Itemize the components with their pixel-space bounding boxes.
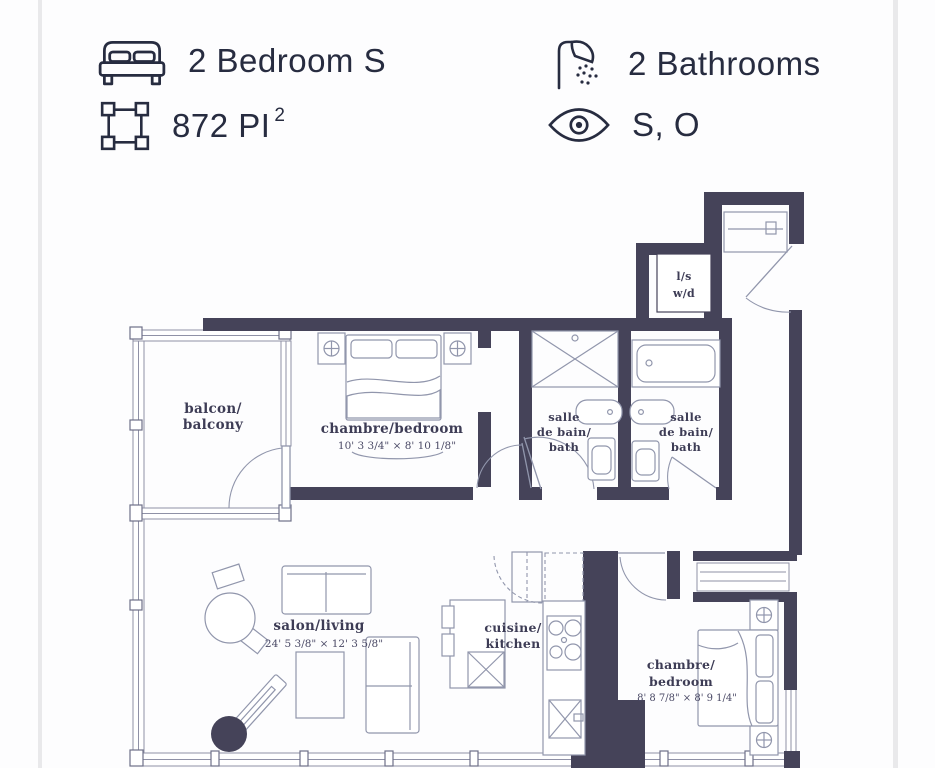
svg-text:10' 3 3/4" × 8' 10 1/8": 10' 3 3/4" × 8' 10 1/8" bbox=[338, 440, 456, 452]
svg-text:balcon/: balcon/ bbox=[184, 401, 241, 417]
svg-text:salon/living: salon/living bbox=[273, 618, 365, 634]
svg-text:8' 8 7/8" × 8' 9 1/4": 8' 8 7/8" × 8' 9 1/4" bbox=[637, 693, 737, 704]
svg-text:24' 5 3/8" × 12' 3 5/8": 24' 5 3/8" × 12' 3 5/8" bbox=[265, 638, 383, 650]
svg-text:w/d: w/d bbox=[672, 287, 695, 300]
room-label-kitchen: cuisine/ kitchen bbox=[484, 620, 541, 651]
room-label-living: salon/living 24' 5 3/8" × 12' 3 5/8" bbox=[265, 618, 383, 650]
svg-text:chambre/: chambre/ bbox=[647, 657, 715, 672]
kitchen-fixtures bbox=[442, 552, 585, 755]
bath1-fixtures bbox=[532, 331, 622, 480]
svg-text:balcony: balcony bbox=[183, 417, 244, 433]
svg-text:bath: bath bbox=[549, 440, 580, 454]
washer-dryer bbox=[657, 254, 711, 312]
svg-text:cuisine/: cuisine/ bbox=[484, 620, 541, 635]
entry-closet bbox=[724, 212, 787, 252]
floorplan-canvas: balcon/ balcony chambre/bedroom 10' 3 3/… bbox=[0, 0, 935, 768]
living-furniture bbox=[205, 564, 419, 752]
svg-text:de bain/: de bain/ bbox=[659, 425, 714, 439]
svg-text:chambre/bedroom: chambre/bedroom bbox=[321, 421, 464, 437]
svg-text:salle: salle bbox=[670, 410, 701, 424]
svg-text:bath: bath bbox=[671, 440, 702, 454]
svg-text:de bain/: de bain/ bbox=[537, 425, 592, 439]
svg-text:l/s: l/s bbox=[676, 270, 691, 283]
room-label-balcony: balcon/ balcony bbox=[183, 401, 244, 433]
svg-text:bedroom: bedroom bbox=[649, 674, 713, 689]
svg-text:salle: salle bbox=[548, 410, 579, 424]
svg-text:kitchen: kitchen bbox=[485, 636, 540, 651]
room-label-bedroom1: chambre/bedroom 10' 3 3/4" × 8' 10 1/8" bbox=[321, 421, 464, 452]
